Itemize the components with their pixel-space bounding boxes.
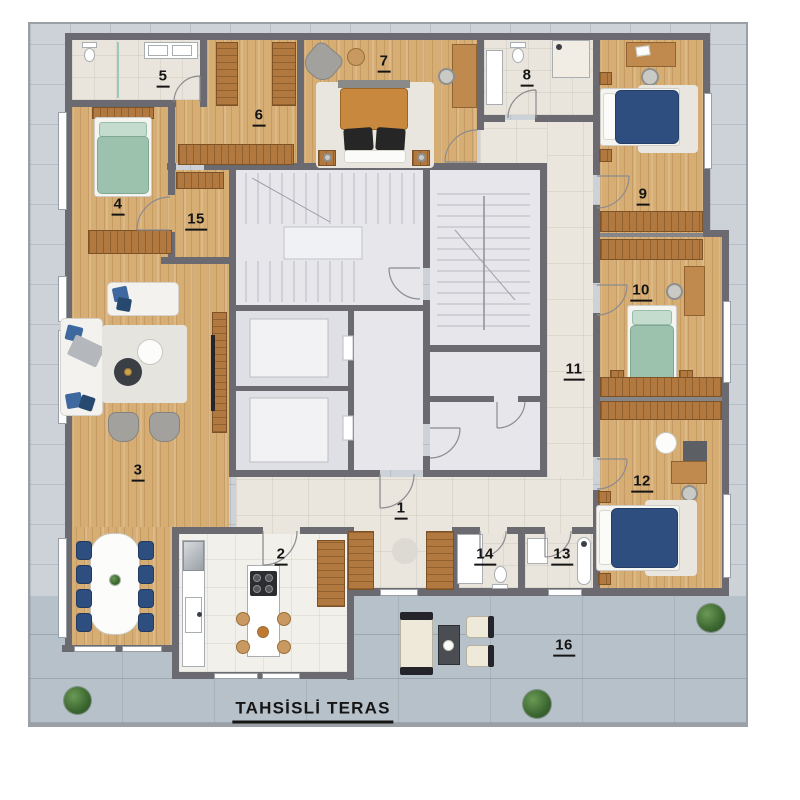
sheet-room7: [344, 150, 406, 163]
wall-core-mid-c: [423, 456, 430, 477]
toilet-bowl-room14: [494, 566, 507, 583]
room-label-2: 2: [275, 547, 288, 566]
wardrobe-room10-bottom: [600, 377, 722, 397]
outdoor-chair-a-back: [488, 616, 494, 638]
wall-core-bottom-b: [423, 470, 547, 477]
room-label-10: 10: [630, 283, 652, 302]
wall-core-mid-b: [423, 300, 430, 424]
wall-bath8-bottom-b: [535, 115, 597, 122]
lamp-b-room7: [417, 153, 426, 162]
room-label-16: 16: [553, 638, 575, 657]
burner-c: [253, 585, 261, 593]
pillow-sofa-top-b: [116, 297, 132, 312]
desk-hutch-room12: [683, 441, 707, 461]
lamp-a-room7: [323, 153, 332, 162]
outdoor-sofa: [400, 614, 433, 674]
wall-elev-divide: [229, 386, 348, 391]
room-label-6: 6: [253, 108, 266, 127]
room-label-4: 4: [112, 197, 125, 216]
side-table-room7: [347, 48, 365, 66]
wall-room6-7: [297, 33, 304, 170]
wall-top: [65, 33, 710, 40]
desk-room12: [671, 461, 707, 484]
room-label-7: 7: [378, 54, 391, 73]
desk-room10: [684, 266, 705, 316]
window-kitchen-a: [214, 673, 258, 679]
room-label-11: 11: [564, 362, 585, 381]
bed-room4: [97, 136, 149, 194]
room-label-15: 15: [185, 212, 207, 231]
outdoor-sofa-arm-bottom: [400, 667, 433, 675]
armchair-b-room3: [149, 412, 180, 442]
window-room12: [723, 494, 731, 578]
pillow-room4: [99, 122, 147, 137]
dining-chair-r2: [138, 565, 154, 584]
desk-chair-room10: [666, 283, 683, 300]
wall-bath5-bottom: [65, 100, 176, 107]
stool-b: [236, 640, 250, 654]
wall-rooms-9-10: [600, 233, 703, 237]
dining-chair-l4: [76, 613, 92, 632]
stool-c: [277, 612, 291, 626]
desk-chair-room7: [438, 68, 455, 85]
wall-room4-right-a: [168, 100, 175, 195]
kitchen-faucet: [197, 612, 202, 617]
wall-wc-top-a: [452, 527, 480, 534]
window-dining-bottom-a: [74, 646, 116, 652]
stair-right-floor: [430, 170, 540, 345]
kitchen-cabinet-right: [317, 540, 345, 607]
dining-chair-r4: [138, 613, 154, 632]
wall-core-left: [229, 163, 236, 477]
desk-room9: [626, 42, 676, 67]
dining-chair-l3: [76, 589, 92, 608]
wall-h1-a: [167, 163, 176, 170]
wall-kitchen-left: [172, 527, 179, 679]
wall-hall-right-c: [593, 313, 600, 457]
terrace-title: TAHSİSLİ TERAS: [232, 699, 393, 724]
stool-a: [236, 612, 250, 626]
wardrobe-room6-bottom: [178, 144, 294, 165]
vanity-room8: [486, 50, 503, 105]
nightstand-b-room12: [598, 573, 611, 585]
window-room9: [704, 93, 712, 169]
wardrobe-room15: [176, 172, 224, 189]
window-dining-bottom-b: [122, 646, 162, 652]
wall-vest-b: [518, 396, 540, 402]
shower-head-room8: [556, 44, 562, 50]
armchair-a-room3: [108, 412, 139, 442]
outdoor-table-items: [443, 640, 454, 651]
wall-elev-lobby: [348, 305, 354, 470]
pillow-b-room7: [375, 127, 406, 152]
room-label-1: 1: [395, 501, 408, 520]
desk-chair-room9: [641, 68, 659, 86]
toilet-bowl-room8: [512, 48, 524, 63]
wardrobe-room9: [600, 211, 703, 232]
floor-plan-page: 1 2 3 4 5 6 7 8 9 10 11 12 13 14 15 16 T…: [0, 0, 800, 800]
wall-kitchen-top-a: [172, 527, 263, 534]
sink-room13: [527, 538, 548, 564]
wall-core-bottom-a: [229, 470, 380, 477]
bed-room12: [611, 508, 678, 568]
hall-round-rug: [392, 538, 418, 564]
window-bath13-bottom: [548, 589, 582, 596]
wardrobe-room6-left: [216, 42, 238, 106]
dining-chair-r1: [138, 541, 154, 560]
wall-bath8-bottom-a: [477, 115, 505, 122]
elevator-lobby-floor: [354, 311, 423, 470]
wardrobe-room6-right: [272, 42, 296, 106]
dining-chair-l1: [76, 541, 92, 560]
island-sink: [257, 626, 269, 638]
wall-wc-top-b: [507, 527, 545, 534]
wall-stairs-elev: [229, 305, 423, 311]
burner-a: [253, 574, 261, 582]
bush-right: [697, 604, 725, 632]
window-kitchen-b: [262, 673, 300, 679]
window-dining: [58, 538, 67, 638]
wardrobe-room10-top: [600, 239, 703, 260]
stair-left-floor: [236, 170, 423, 305]
room-label-3: 3: [132, 463, 145, 482]
stair-vestibule-floor: [430, 352, 540, 470]
dining-chair-l2: [76, 565, 92, 584]
bed-room7: [340, 88, 408, 130]
wall-vest-a: [430, 396, 494, 402]
nightstand-a-room12: [598, 491, 611, 503]
toilet-room14: [492, 584, 508, 589]
decor-room3: [124, 368, 132, 376]
room-label-8: 8: [521, 68, 534, 87]
window-room10: [723, 301, 731, 383]
dining-chair-r3: [138, 589, 154, 608]
outdoor-sofa-arm-top: [400, 612, 433, 620]
outdoor-chair-b-back: [488, 645, 494, 667]
wardrobe-hall-right: [426, 531, 454, 590]
nightstand-a-room9: [599, 72, 612, 85]
room-label-9: 9: [637, 187, 650, 206]
toilet-bowl-room5: [84, 48, 95, 62]
wall-core-right: [540, 163, 547, 477]
stool-d: [277, 640, 291, 654]
room-label-5: 5: [157, 69, 170, 88]
burner-d: [265, 585, 273, 593]
desk-room7: [452, 44, 477, 108]
pillow-a-room7: [343, 127, 374, 152]
wall-hall-right-b: [593, 205, 600, 283]
window-room4: [58, 112, 67, 210]
wardrobe-room12-top: [600, 401, 722, 420]
burner-b: [265, 574, 273, 582]
wall-bath5-right: [200, 33, 207, 107]
dining-centerpiece: [110, 575, 120, 585]
wall-stairR-bottom: [427, 345, 540, 352]
nightstand-b-room9: [599, 149, 612, 162]
headboard-room7: [338, 80, 410, 88]
shower-glass-room5: [117, 42, 119, 98]
tv-room3: [211, 335, 215, 411]
room-label-14: 14: [474, 547, 496, 566]
wardrobe-hall-left: [348, 531, 374, 590]
wall-wc14-right: [518, 527, 525, 588]
elevator-1-shaft: [236, 311, 348, 386]
coffee-table-room3: [137, 339, 163, 365]
room-label-13: 13: [551, 547, 573, 566]
bush-left: [64, 687, 91, 714]
fridge: [183, 541, 204, 571]
bush-center: [523, 690, 551, 718]
wall-room15-bottom: [161, 257, 236, 264]
round-table-room12: [655, 432, 677, 454]
bed-room9: [615, 90, 679, 144]
elevator-2-shaft: [236, 391, 348, 470]
desk-items-room9: [635, 45, 650, 57]
pillow-room10: [632, 310, 672, 325]
shower-head-room13: [581, 541, 587, 547]
basin-b-room5: [172, 45, 192, 56]
window-living-a: [58, 276, 67, 322]
basin-a-room5: [148, 45, 168, 56]
window-hall-bottom: [380, 589, 418, 596]
wall-core-mid-a: [423, 170, 430, 268]
wardrobe-room4: [88, 230, 172, 254]
wall-kitchen-top-b: [300, 527, 354, 534]
room-label-12: 12: [631, 474, 653, 493]
